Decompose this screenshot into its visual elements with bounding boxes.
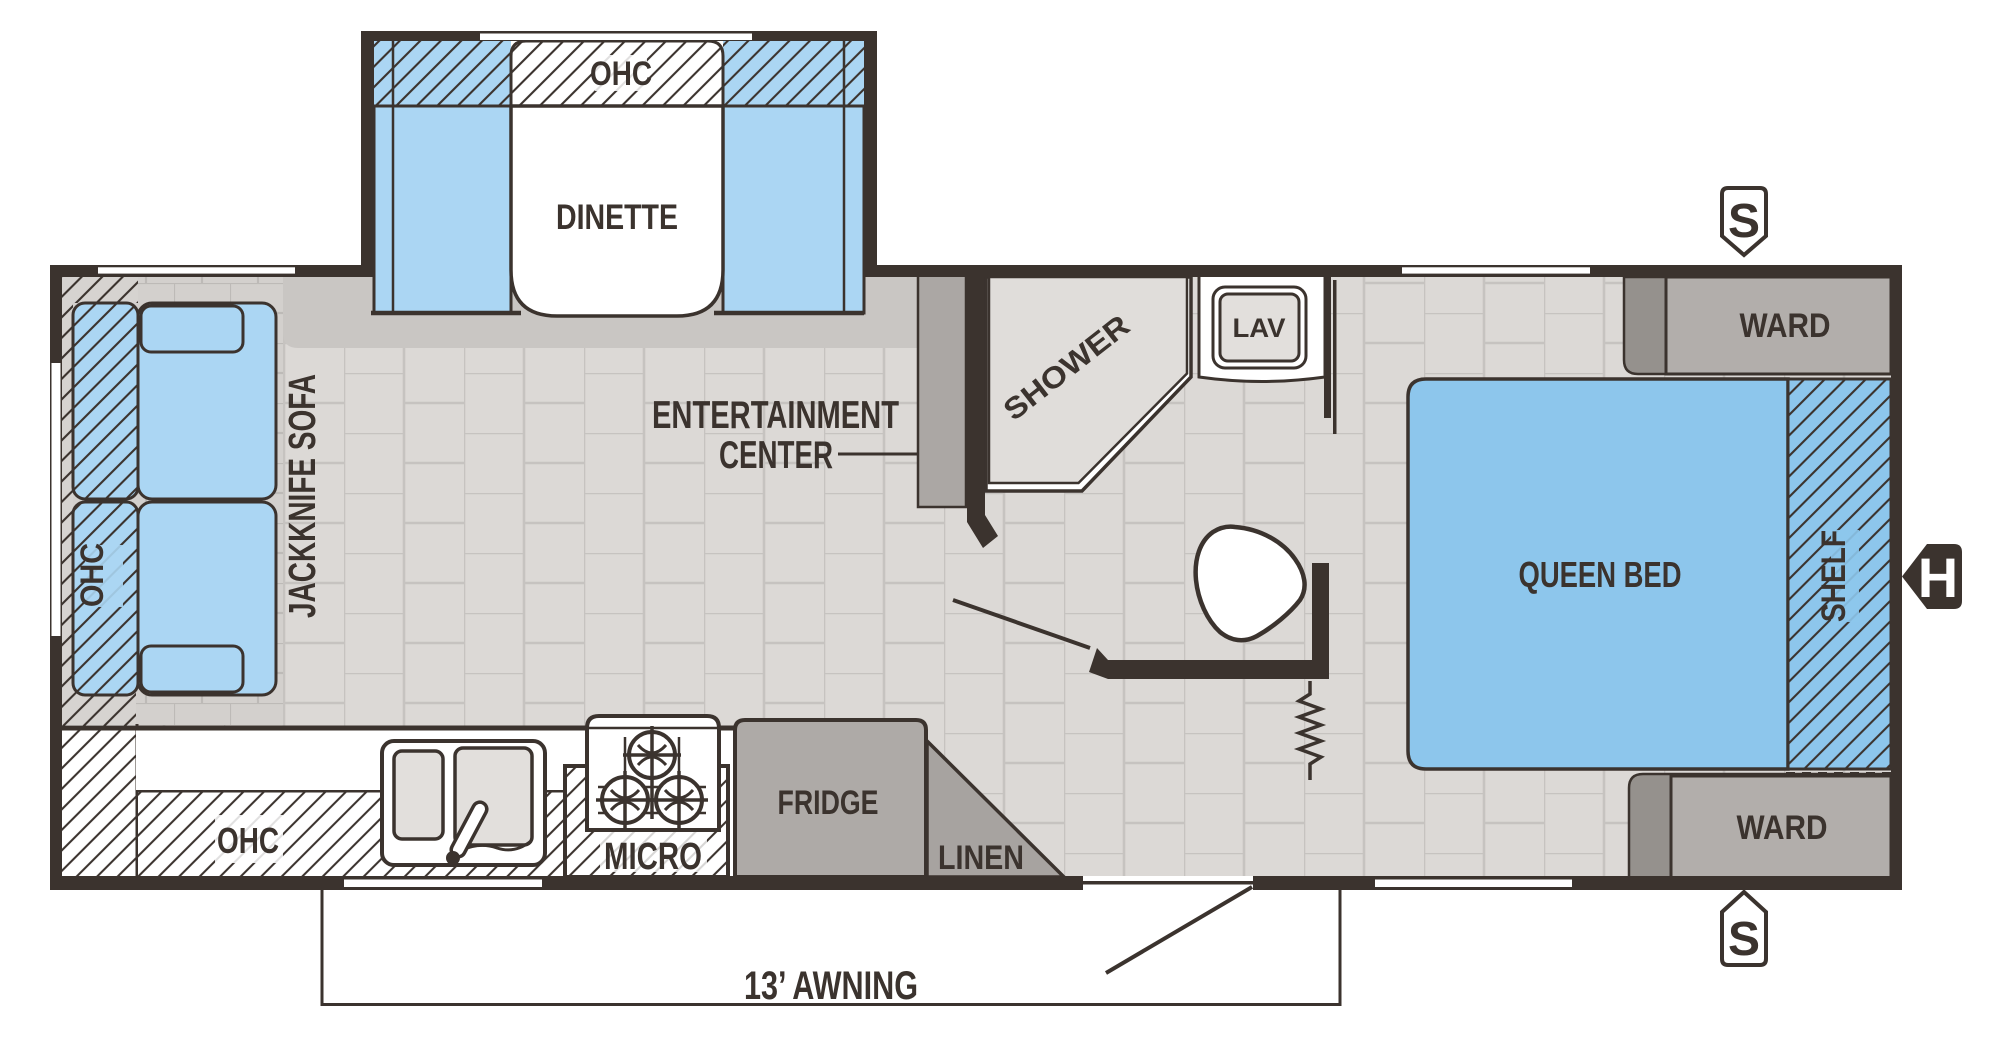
svg-text:CENTER: CENTER <box>719 434 833 477</box>
svg-text:FRIDGE: FRIDGE <box>778 784 879 822</box>
svg-text:WARD: WARD <box>1737 809 1828 847</box>
svg-text:S: S <box>1728 913 1760 966</box>
svg-text:MICRO: MICRO <box>604 836 702 878</box>
svg-text:OHC: OHC <box>590 55 652 93</box>
svg-text:OHC: OHC <box>217 820 279 861</box>
svg-text:H: H <box>1918 546 1958 609</box>
svg-text:LINEN: LINEN <box>938 839 1024 877</box>
svg-text:JACKKNIFE SOFA: JACKKNIFE SOFA <box>282 374 324 618</box>
svg-text:ENTERTAINMENT: ENTERTAINMENT <box>652 394 899 437</box>
svg-text:SHELF: SHELF <box>1815 530 1853 622</box>
svg-text:QUEEN BED: QUEEN BED <box>1519 554 1682 595</box>
svg-text:S: S <box>1728 195 1760 248</box>
svg-text:LAV: LAV <box>1233 313 1286 343</box>
svg-text:WARD: WARD <box>1740 307 1831 345</box>
svg-text:13’ AWNING: 13’ AWNING <box>744 964 918 1008</box>
svg-text:DINETTE: DINETTE <box>556 198 678 237</box>
svg-text:OHC: OHC <box>74 543 110 607</box>
